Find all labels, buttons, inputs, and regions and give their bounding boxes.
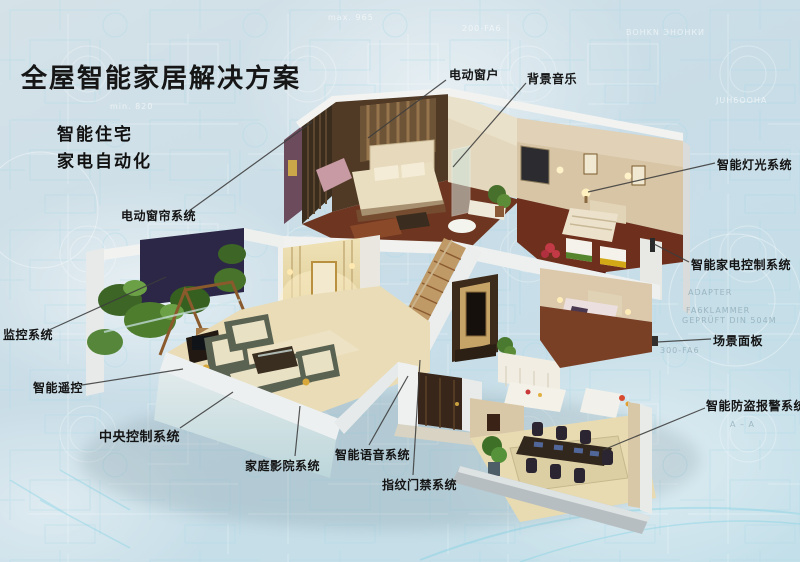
callout-label-background-music: 背景音乐 [527,70,577,87]
callout-line-smart-appliance-control [654,244,689,262]
callout-line-electric-window [368,80,446,138]
callout-line-central-control [180,392,233,428]
poster-subtitle-2: 家电自动化 [57,147,152,172]
blueprint-text: 200-FA6 [462,24,502,33]
callout-label-smart-lighting: 智能灯光系统 [717,156,792,173]
callout-label-smart-voice: 智能语音系统 [335,446,410,463]
callout-line-smart-lighting [588,163,715,192]
callout-line-burglar-alarm [603,408,705,450]
blueprint-text: 300-FA6 [660,346,700,355]
callout-line-home-theater [295,406,300,456]
callout-line-background-music [453,83,526,167]
blueprint-text: FA6KLAMMER [686,306,750,315]
blueprint-text: A – A [730,420,755,429]
callout-label-burglar-alarm: 智能防盗报警系统 [706,397,800,414]
callout-line-fingerprint-access [413,360,420,475]
callout-line-smart-remote [82,369,183,385]
callout-line-electric-curtain [189,122,312,211]
poster-subtitle-1: 智能住宅 [57,120,133,145]
callout-line-surveillance [49,277,166,330]
poster-title: 全屋智能家居解决方案 [21,58,301,95]
callout-label-smart-appliance-control: 智能家电控制系统 [691,256,791,273]
smart-home-poster: max. 965min. 820200-FA6BOHKN ЭНОНКИJUH6O… [0,0,800,562]
callout-label-electric-window: 电动窗户 [449,66,499,83]
blueprint-text: max. 965 [328,13,374,22]
blueprint-text: ADAPTER [688,288,732,297]
callout-label-scene-panel: 场景面板 [713,332,763,349]
callout-line-scene-panel [657,339,711,342]
callout-line-smart-voice [369,376,408,445]
blueprint-text: min. 820 [110,102,153,111]
callout-label-central-control: 中央控制系统 [99,426,180,445]
callout-label-electric-curtain: 电动窗帘系统 [121,207,196,224]
blueprint-text: BOHKN ЭНОНКИ [626,28,705,37]
callout-label-home-theater: 家庭影院系统 [245,457,320,474]
callout-label-surveillance: 监控系统 [3,326,53,343]
blueprint-text: JUH6OOHA [716,96,767,105]
callout-label-fingerprint-access: 指纹门禁系统 [382,476,457,493]
blueprint-text: GEPRÜFT DIN 504M [682,316,777,325]
callout-label-smart-remote: 智能遥控 [33,379,83,396]
